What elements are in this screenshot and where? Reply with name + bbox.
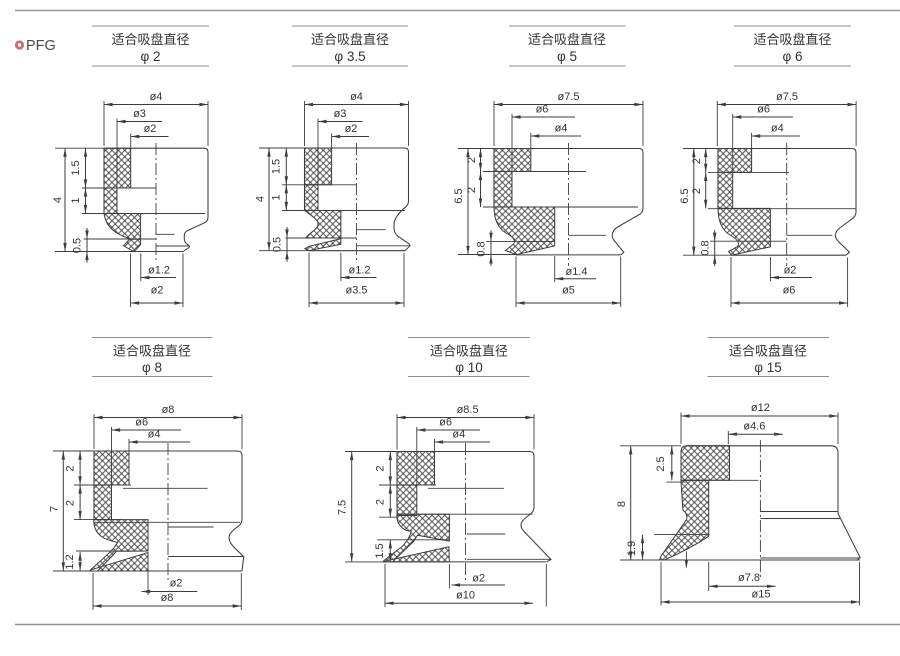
svg-text:ø2: ø2 — [784, 265, 797, 277]
svg-text:ø5: ø5 — [562, 285, 575, 297]
svg-text:φ 8: φ 8 — [142, 360, 162, 375]
svg-text:ø10: ø10 — [456, 590, 475, 602]
svg-text:φ 2: φ 2 — [140, 49, 160, 64]
svg-text:1.9: 1.9 — [626, 541, 638, 556]
svg-text:2: 2 — [466, 187, 478, 193]
svg-text:ø6: ø6 — [757, 104, 770, 116]
svg-text:ø6: ø6 — [783, 285, 796, 297]
svg-text:2.5: 2.5 — [655, 456, 667, 471]
svg-text:ø2: ø2 — [345, 123, 358, 135]
svg-text:2: 2 — [375, 499, 387, 505]
svg-text:2: 2 — [65, 500, 77, 506]
svg-text:适合吸盘直径: 适合吸盘直径 — [113, 344, 191, 359]
svg-text:φ 3.5: φ 3.5 — [334, 49, 365, 64]
svg-text:φ 5: φ 5 — [557, 49, 577, 64]
svg-text:2: 2 — [375, 465, 387, 471]
svg-text:6.5: 6.5 — [679, 188, 691, 203]
svg-text:ø2: ø2 — [170, 578, 183, 590]
svg-text:6.5: 6.5 — [453, 188, 465, 203]
svg-text:1: 1 — [271, 194, 283, 200]
svg-text:ø7.8: ø7.8 — [738, 572, 760, 584]
svg-text:7: 7 — [49, 506, 61, 512]
svg-text:ø7.5: ø7.5 — [776, 91, 798, 103]
svg-text:ø1.4: ø1.4 — [565, 266, 587, 278]
svg-text:ø1.2: ø1.2 — [348, 265, 370, 277]
svg-text:PFG: PFG — [26, 38, 56, 54]
svg-text:ø4: ø4 — [771, 123, 784, 135]
svg-text:适合吸盘直径: 适合吸盘直径 — [753, 32, 831, 47]
svg-text:适合吸盘直径: 适合吸盘直径 — [111, 32, 189, 47]
svg-text:0.5: 0.5 — [272, 237, 284, 252]
svg-text:2: 2 — [691, 188, 703, 194]
svg-text:0.5: 0.5 — [72, 238, 84, 253]
svg-text:ø2: ø2 — [151, 285, 164, 297]
svg-text:φ 10: φ 10 — [455, 360, 483, 375]
svg-text:ø4: ø4 — [452, 429, 465, 441]
svg-text:8: 8 — [616, 501, 628, 507]
svg-text:适合吸盘直径: 适合吸盘直径 — [430, 344, 508, 359]
svg-text:ø8: ø8 — [162, 404, 175, 416]
svg-text:ø2: ø2 — [472, 573, 485, 585]
svg-text:2: 2 — [466, 157, 478, 163]
svg-text:ø3.5: ø3.5 — [345, 285, 367, 297]
svg-text:φ 15: φ 15 — [754, 360, 782, 375]
svg-text:ø4: ø4 — [148, 429, 161, 441]
svg-text:ø6: ø6 — [135, 417, 148, 429]
svg-text:1.5: 1.5 — [70, 160, 82, 175]
svg-text:4: 4 — [255, 196, 267, 202]
svg-text:1.5: 1.5 — [374, 543, 386, 558]
svg-text:4: 4 — [52, 197, 64, 203]
svg-text:ø8: ø8 — [161, 592, 174, 604]
svg-text:0.8: 0.8 — [476, 241, 488, 256]
svg-text:适合吸盘直径: 适合吸盘直径 — [729, 344, 807, 359]
svg-text:ø6: ø6 — [439, 417, 452, 429]
svg-text:0.8: 0.8 — [700, 240, 712, 255]
svg-text:ø4: ø4 — [555, 123, 568, 135]
svg-text:ø4: ø4 — [150, 91, 163, 103]
svg-text:2: 2 — [691, 158, 703, 164]
svg-text:ø12: ø12 — [751, 402, 770, 414]
svg-text:1.2: 1.2 — [64, 554, 76, 569]
svg-text:ø3: ø3 — [133, 108, 146, 120]
svg-text:ø7.5: ø7.5 — [557, 91, 579, 103]
svg-text:φ 6: φ 6 — [782, 49, 802, 64]
svg-text:ø3: ø3 — [334, 108, 347, 120]
svg-text:ø2: ø2 — [144, 123, 157, 135]
svg-text:适合吸盘直径: 适合吸盘直径 — [528, 32, 606, 47]
svg-text:ø8.5: ø8.5 — [457, 404, 479, 416]
svg-text:2: 2 — [65, 465, 77, 471]
svg-text:1: 1 — [70, 197, 82, 203]
svg-text:ø6: ø6 — [536, 104, 549, 116]
svg-text:ø4: ø4 — [350, 91, 363, 103]
svg-text:ø1.2: ø1.2 — [148, 265, 170, 277]
svg-text:7.5: 7.5 — [337, 500, 349, 515]
svg-text:ø4.6: ø4.6 — [743, 421, 765, 433]
svg-text:ø15: ø15 — [752, 589, 771, 601]
svg-text:1.5: 1.5 — [271, 159, 283, 174]
svg-text:适合吸盘直径: 适合吸盘直径 — [311, 32, 389, 47]
